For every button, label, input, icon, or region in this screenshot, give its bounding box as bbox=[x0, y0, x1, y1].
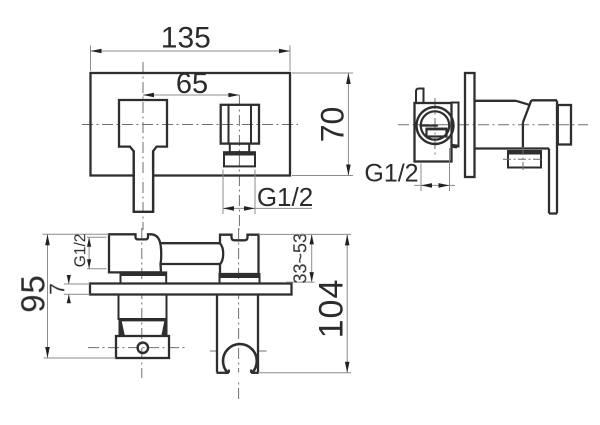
svg-text:65: 65 bbox=[176, 68, 208, 100]
svg-text:G1/2: G1/2 bbox=[257, 182, 313, 212]
svg-text:104: 104 bbox=[313, 279, 351, 339]
svg-text:7: 7 bbox=[46, 283, 69, 295]
svg-text:33~53: 33~53 bbox=[290, 233, 310, 284]
svg-text:70: 70 bbox=[315, 107, 351, 143]
svg-text:G1/2: G1/2 bbox=[364, 160, 418, 188]
svg-text:G1/2: G1/2 bbox=[72, 234, 89, 268]
svg-text:135: 135 bbox=[161, 22, 211, 55]
